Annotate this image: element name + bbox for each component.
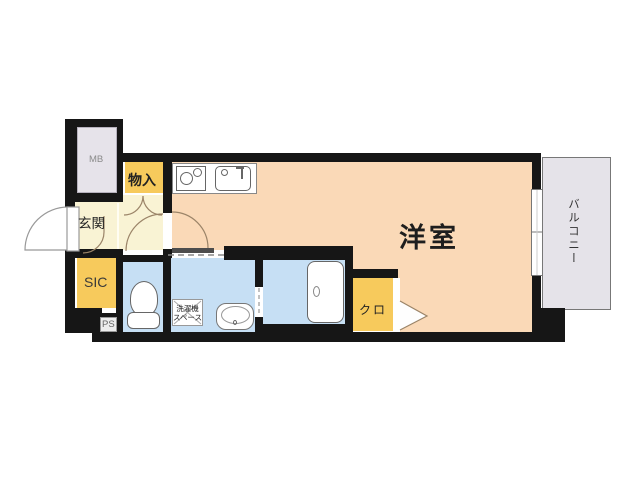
wall-corner-block [532, 308, 565, 342]
entrance-label: 玄関 [78, 212, 105, 232]
wall-right-upper [532, 153, 541, 190]
shoe-closet-label: SIC [84, 274, 107, 290]
bathroom-door-gap [255, 287, 263, 317]
floor-plan: 洋室 バルコニー 玄関 SIC 物入 クロ MB PS 洗濯機 スペース [0, 0, 640, 480]
front-door-swing-arc [25, 207, 68, 250]
wall-toilet-top [116, 255, 170, 262]
sink-faucet-stem [241, 167, 243, 179]
wall-entrance-sic [65, 249, 117, 258]
stove-burner-large [180, 172, 193, 185]
storage-label: 物入 [128, 170, 156, 190]
wall-closet-top [345, 269, 398, 278]
wall-bath-left-upper [255, 258, 263, 287]
meter-box-label: MB [89, 154, 103, 165]
hallway-floor [122, 192, 165, 250]
sink-drain [221, 169, 228, 176]
wall-bottom-left-block [65, 308, 102, 333]
wall-hall-right-upper [163, 155, 172, 214]
balcony-window [531, 189, 543, 276]
front-door-gap [65, 209, 75, 249]
wall-bath-bottom [255, 324, 353, 334]
wall-left-lower [65, 249, 75, 309]
closet-open-side [393, 278, 400, 332]
wall-top [123, 153, 541, 162]
kitchen-sink-icon [215, 166, 251, 191]
bathtub-drain [313, 286, 320, 297]
wall-bath-right [345, 248, 353, 333]
toilet-icon-bowl [130, 281, 158, 316]
washer-space-label: 洗濯機 スペース [170, 304, 205, 322]
balcony-label: バルコニー [565, 198, 581, 266]
closet-label: クロ [359, 301, 387, 318]
washbasin-faucet [233, 320, 237, 325]
pipe-space-label: PS [102, 319, 115, 330]
washer-space-label-line1: 洗濯機 [176, 304, 199, 313]
western-room-label: 洋室 [399, 216, 459, 255]
entrance-step-line [117, 203, 119, 249]
washer-space-label-line2: スペース [173, 313, 202, 322]
stove-burner-small [193, 168, 202, 177]
wall-left-upper [65, 202, 75, 209]
toilet-icon-tank [127, 312, 160, 329]
wall-washroom-bath-top [224, 246, 353, 260]
room-door-gap [163, 213, 172, 249]
